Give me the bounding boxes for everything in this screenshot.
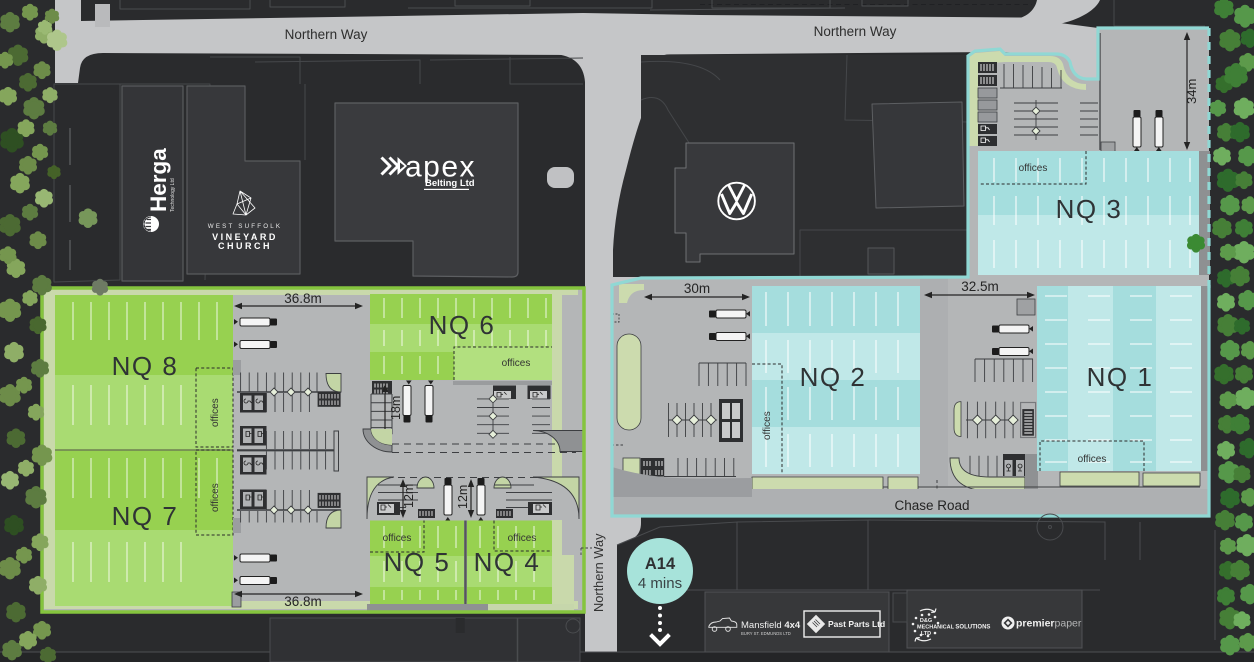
svg-text:18m: 18m (389, 396, 403, 420)
svg-text:36.8m: 36.8m (284, 594, 322, 609)
svg-text:30m: 30m (684, 281, 710, 296)
svg-text:BURY ST. EDMUNDS LTD: BURY ST. EDMUNDS LTD (741, 631, 791, 636)
svg-text:Northern Way: Northern Way (814, 24, 897, 39)
svg-text:Herga: Herga (146, 148, 171, 212)
svg-text:D&G: D&G (920, 618, 932, 624)
svg-text:NQ 3: NQ 3 (1056, 194, 1123, 224)
svg-text:offices: offices (762, 411, 773, 440)
svg-text:NQ 7: NQ 7 (112, 501, 179, 531)
svg-text:Northern Way: Northern Way (285, 27, 368, 42)
svg-text:offices: offices (210, 483, 221, 512)
svg-text:Northern Way: Northern Way (591, 533, 606, 612)
svg-text:12m: 12m (456, 485, 470, 509)
svg-text:NQ 2: NQ 2 (800, 362, 867, 392)
svg-text:MECHANICAL SOLUTIONS: MECHANICAL SOLUTIONS (917, 625, 990, 631)
svg-text:Mansfield 4x4: Mansfield 4x4 (741, 620, 801, 631)
svg-text:Chase Road: Chase Road (894, 498, 969, 513)
svg-text:12m: 12m (402, 484, 416, 508)
svg-text:34m: 34m (1184, 79, 1199, 104)
svg-text:premierpaper: premierpaper (1016, 618, 1082, 630)
svg-text:LTD: LTD (921, 631, 931, 637)
svg-text:Technology Ltd: Technology Ltd (170, 178, 176, 212)
svg-text:offices: offices (502, 358, 531, 369)
svg-text:Belting Ltd: Belting Ltd (425, 178, 475, 189)
svg-text:offices: offices (383, 533, 412, 544)
svg-text:4 mins: 4 mins (638, 575, 682, 592)
svg-text:NQ 8: NQ 8 (112, 351, 179, 381)
svg-text:Past Parts Ltd: Past Parts Ltd (828, 619, 885, 629)
svg-text:A14: A14 (645, 555, 676, 573)
svg-text:offices: offices (508, 533, 537, 544)
svg-text:NQ 6: NQ 6 (429, 310, 496, 340)
svg-text:offices: offices (1078, 454, 1107, 465)
svg-text:36.8m: 36.8m (284, 291, 322, 306)
svg-text:NQ 1: NQ 1 (1087, 362, 1154, 392)
svg-text:offices: offices (210, 398, 221, 427)
svg-text:32.5m: 32.5m (961, 279, 999, 294)
svg-text:WEST SUFFOLK: WEST SUFFOLK (208, 223, 282, 230)
svg-text:offices: offices (1019, 163, 1048, 174)
svg-text:CHURCH: CHURCH (218, 241, 272, 251)
